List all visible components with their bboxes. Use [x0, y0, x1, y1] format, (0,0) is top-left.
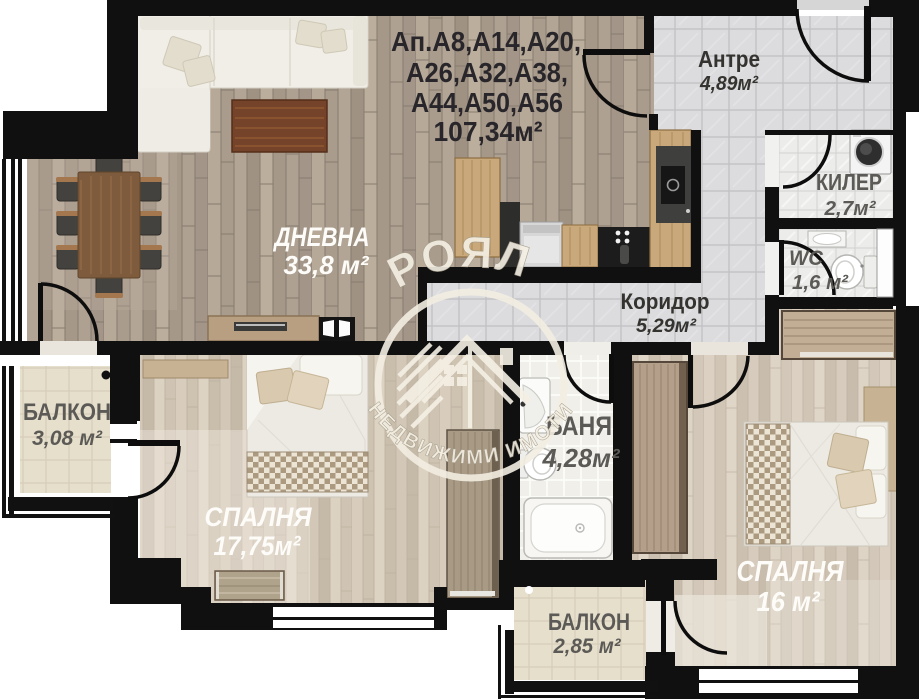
svg-text:107,34м²: 107,34м² — [434, 116, 543, 147]
svg-text:WC: WC — [789, 247, 824, 270]
svg-text:А26,А32,А38,: А26,А32,А38, — [406, 57, 568, 88]
svg-text:5,29м²: 5,29м² — [636, 316, 697, 337]
svg-text:КИЛЕР: КИЛЕР — [816, 169, 882, 195]
svg-text:А44,А50,А56: А44,А50,А56 — [411, 87, 563, 118]
svg-text:СПАЛНЯ: СПАЛНЯ — [205, 502, 313, 532]
svg-text:3,08 м²: 3,08 м² — [32, 427, 103, 450]
svg-text:2,7м²: 2,7м² — [823, 198, 876, 220]
svg-text:17,75м²: 17,75м² — [214, 531, 302, 561]
svg-text:Антре: Антре — [698, 46, 760, 72]
svg-text:1,6 м²: 1,6 м² — [792, 272, 849, 294]
svg-text:Коридор: Коридор — [621, 289, 710, 314]
svg-text:4,28м²: 4,28м² — [542, 443, 621, 473]
svg-text:БАЛКОН: БАЛКОН — [548, 609, 630, 636]
svg-text:2,85 м²: 2,85 м² — [553, 635, 622, 658]
svg-text:16 м²: 16 м² — [757, 586, 821, 617]
svg-text:33,8 м²: 33,8 м² — [284, 250, 370, 280]
svg-text:4,89м²: 4,89м² — [699, 73, 759, 95]
svg-text:Ап.А8,А14,А20,: Ап.А8,А14,А20, — [391, 26, 581, 57]
svg-text:СПАЛНЯ: СПАЛНЯ — [737, 556, 845, 588]
svg-text:ДНЕВНА: ДНЕВНА — [273, 222, 370, 252]
svg-text:БАЛКОН: БАЛКОН — [23, 399, 111, 426]
